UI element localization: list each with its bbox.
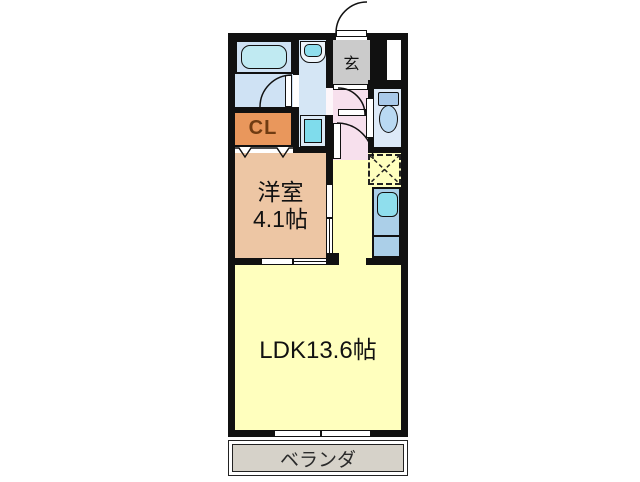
veranda-label: ベランダ xyxy=(280,445,356,472)
wall-segment xyxy=(228,33,235,437)
refrigerator-space-icon xyxy=(368,154,401,185)
wall-segment xyxy=(228,430,275,437)
wall-segment xyxy=(368,89,374,98)
genkan-step xyxy=(333,84,368,90)
closet-label: CL xyxy=(233,110,293,147)
washbasin-bowl xyxy=(304,44,322,57)
sliding-door-vertical xyxy=(326,185,333,253)
washroom-door-leaf xyxy=(338,109,366,116)
genkan-label: 玄 xyxy=(333,40,370,84)
sliding-door-rail xyxy=(294,261,326,262)
washroom-doorway xyxy=(326,88,333,115)
window-tick xyxy=(320,431,322,436)
entrance-door-leaf xyxy=(336,30,367,37)
wall-segment xyxy=(370,430,408,437)
western-room-name: 洋室 xyxy=(258,179,304,205)
sliding-door-rail xyxy=(329,219,330,253)
kitchen-sink-icon xyxy=(377,192,398,217)
wall-segment xyxy=(326,115,333,185)
toilet-tank-icon xyxy=(378,92,399,106)
ldk-label: LDK13.6帖 xyxy=(235,265,401,430)
ldk-door-leaf xyxy=(333,123,341,159)
veranda-floor: ベランダ xyxy=(232,444,404,472)
veranda-box: ベランダ xyxy=(228,440,408,476)
bathroom-door-leaf xyxy=(285,75,292,107)
entrance-door-arc xyxy=(336,2,367,33)
wall-segment xyxy=(326,253,339,265)
western-room-label: 洋室 4.1帖 xyxy=(235,153,326,258)
wall-segment xyxy=(370,40,387,80)
counter-divider-line xyxy=(373,235,400,237)
bathtub-icon xyxy=(241,45,287,69)
toilet-bowl-icon xyxy=(379,105,398,133)
wall-segment xyxy=(401,33,408,437)
wall-segment xyxy=(366,258,401,265)
wall-segment xyxy=(228,33,336,40)
wall-segment xyxy=(368,138,374,147)
wall-segment xyxy=(293,40,299,75)
sliding-door-horizontal xyxy=(262,258,326,265)
wall-segment xyxy=(368,147,401,153)
wall-segment xyxy=(228,258,262,265)
washing-machine-drum xyxy=(304,119,322,143)
wall-segment xyxy=(326,40,333,88)
western-room-size: 4.1帖 xyxy=(253,206,308,232)
veranda-window xyxy=(275,430,370,437)
shoe-cabinet xyxy=(387,40,401,80)
wall-segment xyxy=(368,80,401,89)
floorplan-canvas: ベランダ 玄 CL 洋室 4.1帖 LDK13.6帖 xyxy=(0,0,640,482)
toilet-door-leaf xyxy=(366,98,374,138)
